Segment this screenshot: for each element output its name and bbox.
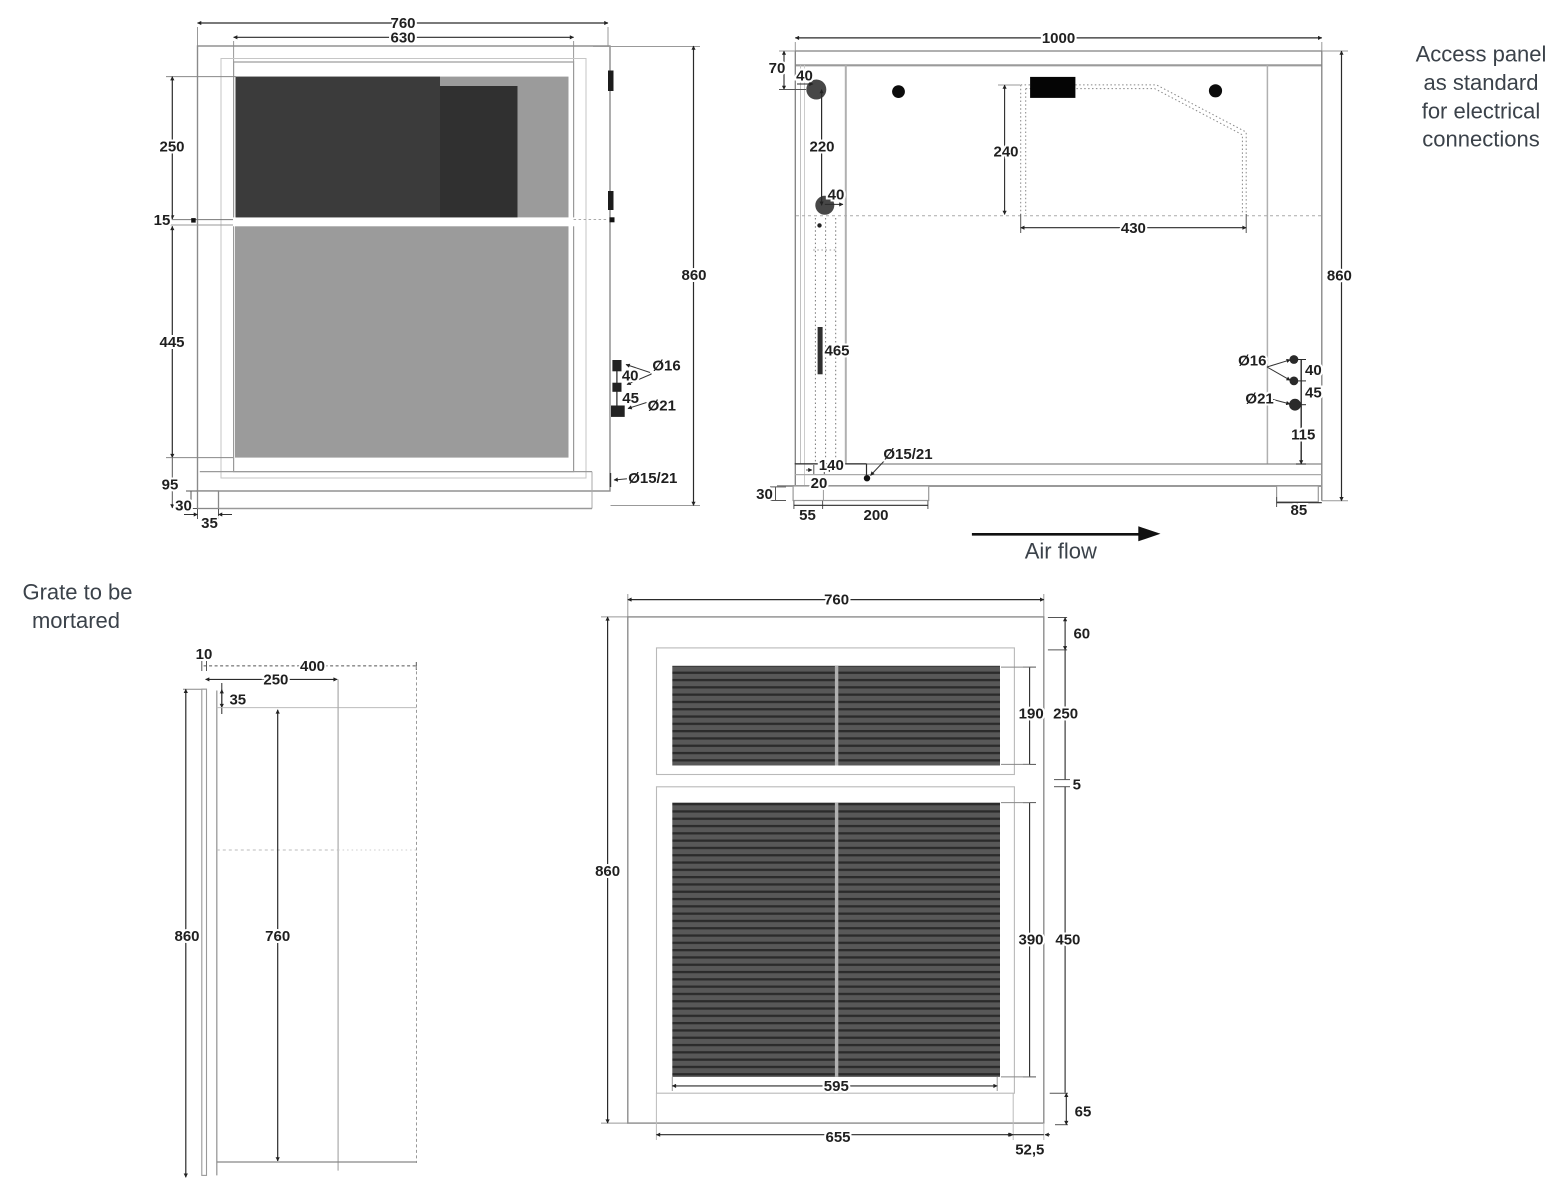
svg-text:85: 85: [1291, 502, 1308, 519]
svg-text:15: 15: [154, 212, 171, 229]
svg-text:5: 5: [1073, 777, 1081, 794]
svg-text:Grate to be: Grate to be: [22, 579, 132, 604]
svg-text:40: 40: [622, 367, 639, 384]
svg-text:200: 200: [863, 507, 888, 524]
svg-text:115: 115: [1291, 426, 1315, 443]
svg-text:390: 390: [1018, 932, 1043, 949]
svg-text:Ø15/21: Ø15/21: [883, 446, 932, 463]
svg-text:190: 190: [1019, 706, 1044, 723]
svg-text:860: 860: [595, 863, 620, 880]
svg-text:250: 250: [263, 671, 288, 688]
svg-text:65: 65: [1075, 1103, 1092, 1120]
svg-text:Ø16: Ø16: [1238, 353, 1266, 370]
svg-text:70: 70: [769, 60, 786, 77]
svg-text:connections: connections: [1422, 126, 1539, 151]
svg-text:95: 95: [162, 477, 179, 494]
svg-text:40: 40: [828, 186, 845, 203]
svg-text:140: 140: [819, 457, 844, 474]
svg-text:655: 655: [825, 1129, 850, 1146]
svg-text:as standard: as standard: [1424, 70, 1539, 95]
svg-text:45: 45: [622, 390, 639, 407]
svg-text:mortared: mortared: [32, 608, 120, 633]
svg-text:860: 860: [174, 928, 199, 945]
svg-text:445: 445: [159, 334, 184, 351]
svg-text:20: 20: [811, 475, 828, 492]
svg-text:30: 30: [756, 486, 773, 503]
svg-text:40: 40: [796, 67, 813, 84]
svg-text:220: 220: [809, 138, 834, 155]
svg-text:430: 430: [1121, 220, 1146, 237]
svg-text:Ø21: Ø21: [648, 397, 676, 414]
svg-text:52,5: 52,5: [1015, 1142, 1044, 1159]
svg-text:760: 760: [265, 928, 290, 945]
svg-text:Ø16: Ø16: [652, 358, 680, 375]
svg-text:Air flow: Air flow: [1025, 539, 1097, 564]
svg-text:1000: 1000: [1042, 30, 1075, 47]
svg-text:860: 860: [681, 267, 706, 284]
svg-text:860: 860: [1327, 267, 1352, 284]
svg-text:760: 760: [824, 592, 849, 609]
svg-text:630: 630: [390, 29, 415, 46]
svg-text:450: 450: [1055, 932, 1080, 949]
svg-text:595: 595: [824, 1078, 849, 1095]
svg-text:240: 240: [993, 144, 1018, 161]
svg-text:60: 60: [1073, 626, 1090, 643]
svg-text:55: 55: [799, 507, 816, 524]
svg-text:400: 400: [300, 658, 325, 675]
svg-text:40: 40: [1305, 362, 1322, 379]
svg-text:10: 10: [196, 646, 213, 663]
svg-text:Ø15/21: Ø15/21: [628, 470, 677, 487]
svg-text:465: 465: [824, 343, 849, 360]
svg-text:Access panel: Access panel: [1416, 42, 1547, 67]
svg-text:250: 250: [159, 139, 184, 156]
svg-text:Ø21: Ø21: [1245, 391, 1273, 408]
svg-text:45: 45: [1305, 385, 1322, 402]
svg-text:35: 35: [229, 692, 246, 709]
svg-text:30: 30: [175, 498, 192, 515]
svg-text:35: 35: [201, 515, 218, 532]
svg-text:250: 250: [1053, 706, 1078, 723]
svg-text:for electrical: for electrical: [1422, 98, 1541, 123]
